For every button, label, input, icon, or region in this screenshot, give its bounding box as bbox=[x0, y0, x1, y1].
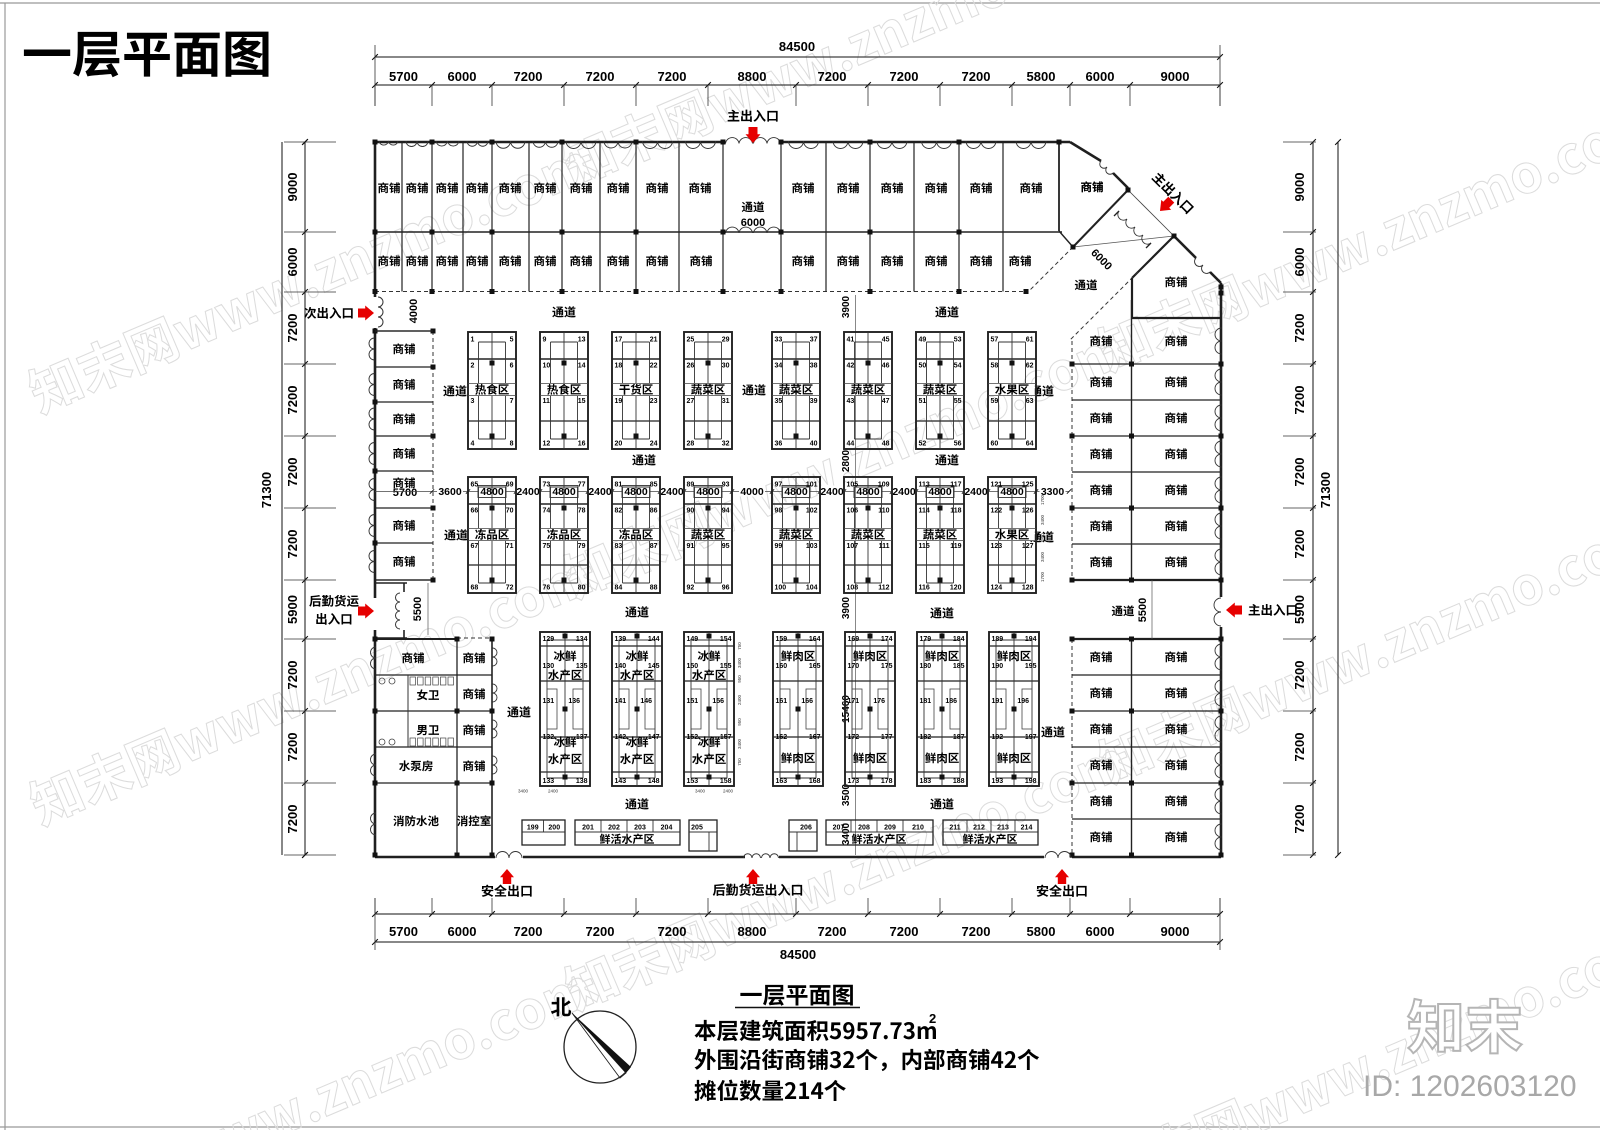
svg-text:7200: 7200 bbox=[1292, 805, 1307, 834]
svg-text:171: 171 bbox=[848, 698, 860, 705]
svg-text:59: 59 bbox=[991, 398, 999, 405]
svg-text:191: 191 bbox=[992, 698, 1004, 705]
svg-text:77: 77 bbox=[578, 482, 586, 489]
svg-text:163: 163 bbox=[776, 778, 788, 785]
svg-text:7200: 7200 bbox=[285, 805, 300, 834]
svg-text:95: 95 bbox=[722, 543, 730, 550]
svg-text:202: 202 bbox=[608, 825, 620, 832]
svg-text:145: 145 bbox=[648, 663, 660, 670]
svg-text:57: 57 bbox=[991, 337, 999, 344]
svg-text:146: 146 bbox=[640, 698, 652, 705]
svg-text:175: 175 bbox=[881, 663, 893, 670]
svg-text:36: 36 bbox=[775, 441, 783, 448]
svg-text:5700: 5700 bbox=[389, 924, 418, 939]
svg-text:73: 73 bbox=[543, 482, 551, 489]
svg-text:6000: 6000 bbox=[1086, 69, 1115, 84]
svg-text:8800: 8800 bbox=[738, 924, 767, 939]
svg-text:34: 34 bbox=[775, 363, 783, 370]
svg-text:7200: 7200 bbox=[818, 69, 847, 84]
svg-text:173: 173 bbox=[848, 778, 860, 785]
svg-text:7200: 7200 bbox=[818, 924, 847, 939]
svg-text:8800: 8800 bbox=[738, 69, 767, 84]
svg-text:2: 2 bbox=[929, 1011, 936, 1026]
svg-text:164: 164 bbox=[809, 636, 821, 643]
svg-text:5700: 5700 bbox=[389, 69, 418, 84]
svg-text:19: 19 bbox=[615, 398, 623, 405]
svg-text:53: 53 bbox=[954, 337, 962, 344]
svg-text:184: 184 bbox=[953, 636, 965, 643]
svg-text:82: 82 bbox=[615, 508, 623, 515]
svg-text:2400: 2400 bbox=[892, 486, 916, 498]
svg-text:103: 103 bbox=[806, 543, 818, 550]
svg-text:120: 120 bbox=[950, 585, 962, 592]
svg-text:23: 23 bbox=[650, 398, 658, 405]
svg-text:28: 28 bbox=[687, 441, 695, 448]
svg-text:68: 68 bbox=[471, 585, 479, 592]
svg-text:165: 165 bbox=[809, 663, 821, 670]
svg-text:5800: 5800 bbox=[1027, 924, 1056, 939]
svg-text:130: 130 bbox=[543, 663, 555, 670]
svg-text:97: 97 bbox=[775, 482, 783, 489]
svg-text:7200: 7200 bbox=[1292, 386, 1307, 415]
svg-text:5: 5 bbox=[510, 337, 514, 344]
svg-text:46: 46 bbox=[882, 363, 890, 370]
svg-text:198: 198 bbox=[1025, 778, 1037, 785]
svg-text:64: 64 bbox=[1026, 441, 1034, 448]
svg-text:9000: 9000 bbox=[285, 173, 300, 202]
svg-text:194: 194 bbox=[1025, 636, 1037, 643]
svg-text:176: 176 bbox=[873, 698, 885, 705]
svg-text:155: 155 bbox=[720, 663, 732, 670]
svg-text:147: 147 bbox=[648, 734, 660, 741]
svg-text:900: 900 bbox=[1040, 533, 1045, 541]
svg-text:25: 25 bbox=[687, 337, 695, 344]
svg-text:139: 139 bbox=[615, 636, 627, 643]
svg-text:132: 132 bbox=[543, 734, 555, 741]
svg-text:186: 186 bbox=[945, 698, 957, 705]
svg-text:62: 62 bbox=[1026, 363, 1034, 370]
svg-text:5900: 5900 bbox=[285, 595, 300, 624]
svg-text:135: 135 bbox=[576, 663, 588, 670]
svg-text:66: 66 bbox=[471, 508, 479, 515]
svg-text:105: 105 bbox=[847, 482, 859, 489]
svg-text:108: 108 bbox=[847, 585, 859, 592]
svg-text:158: 158 bbox=[720, 778, 732, 785]
svg-text:118: 118 bbox=[950, 508, 961, 515]
svg-text:58: 58 bbox=[991, 363, 999, 370]
svg-text:161: 161 bbox=[776, 698, 788, 705]
svg-text:7200: 7200 bbox=[962, 69, 991, 84]
svg-text:174: 174 bbox=[881, 636, 893, 643]
svg-text:4000: 4000 bbox=[740, 486, 764, 498]
svg-text:49: 49 bbox=[919, 337, 927, 344]
svg-text:21: 21 bbox=[650, 337, 658, 344]
svg-text:42: 42 bbox=[847, 363, 855, 370]
svg-text:37: 37 bbox=[810, 337, 818, 344]
svg-text:149: 149 bbox=[687, 636, 699, 643]
svg-text:96: 96 bbox=[722, 585, 730, 592]
svg-text:150: 150 bbox=[687, 663, 699, 670]
svg-text:11: 11 bbox=[543, 398, 551, 405]
svg-text:750: 750 bbox=[737, 642, 742, 650]
svg-text:26: 26 bbox=[687, 363, 695, 370]
svg-text:200: 200 bbox=[548, 825, 560, 832]
svg-text:76: 76 bbox=[543, 585, 551, 592]
svg-text:113: 113 bbox=[919, 482, 930, 489]
svg-text:32: 32 bbox=[722, 441, 730, 448]
svg-text:14: 14 bbox=[578, 363, 586, 370]
svg-text:116: 116 bbox=[919, 585, 930, 592]
svg-text:71300: 71300 bbox=[259, 472, 274, 508]
svg-text:6000: 6000 bbox=[285, 248, 300, 277]
svg-text:193: 193 bbox=[992, 778, 1004, 785]
svg-text:2400: 2400 bbox=[737, 694, 742, 705]
svg-text:7200: 7200 bbox=[1292, 661, 1307, 690]
svg-text:7200: 7200 bbox=[890, 924, 919, 939]
svg-text:1700: 1700 bbox=[1040, 571, 1045, 582]
svg-text:98: 98 bbox=[775, 508, 783, 515]
svg-text:48: 48 bbox=[882, 441, 890, 448]
svg-text:157: 157 bbox=[720, 734, 732, 741]
svg-text:89: 89 bbox=[687, 482, 695, 489]
svg-text:7200: 7200 bbox=[586, 924, 615, 939]
svg-text:6: 6 bbox=[510, 363, 514, 370]
svg-text:136: 136 bbox=[568, 698, 580, 705]
svg-text:9000: 9000 bbox=[1161, 69, 1190, 84]
svg-text:65: 65 bbox=[471, 482, 479, 489]
svg-text:85: 85 bbox=[650, 482, 658, 489]
svg-text:51: 51 bbox=[919, 398, 927, 405]
svg-text:3400: 3400 bbox=[695, 789, 706, 794]
svg-text:137: 137 bbox=[576, 734, 588, 741]
svg-text:7200: 7200 bbox=[658, 69, 687, 84]
svg-text:206: 206 bbox=[800, 825, 812, 832]
svg-text:2400: 2400 bbox=[820, 486, 844, 498]
svg-text:7200: 7200 bbox=[285, 386, 300, 415]
svg-text:9000: 9000 bbox=[1161, 924, 1190, 939]
svg-text:17: 17 bbox=[615, 337, 623, 344]
svg-text:125: 125 bbox=[1022, 482, 1034, 489]
svg-text:7200: 7200 bbox=[285, 733, 300, 762]
svg-text:7200: 7200 bbox=[285, 661, 300, 690]
svg-text:196: 196 bbox=[1017, 698, 1029, 705]
svg-text:214: 214 bbox=[1021, 825, 1033, 832]
svg-text:52: 52 bbox=[919, 441, 927, 448]
svg-text:3400: 3400 bbox=[737, 657, 742, 668]
svg-text:7: 7 bbox=[510, 398, 514, 405]
svg-text:2800: 2800 bbox=[841, 449, 852, 472]
svg-text:60: 60 bbox=[991, 441, 999, 448]
svg-text:197: 197 bbox=[1025, 734, 1037, 741]
svg-text:2400: 2400 bbox=[964, 486, 988, 498]
svg-text:166: 166 bbox=[801, 698, 813, 705]
svg-text:6000: 6000 bbox=[448, 69, 477, 84]
svg-text:195: 195 bbox=[1025, 663, 1037, 670]
svg-text:83: 83 bbox=[615, 543, 623, 550]
svg-text:207: 207 bbox=[833, 825, 845, 832]
svg-text:181: 181 bbox=[920, 698, 932, 705]
svg-text:213: 213 bbox=[997, 825, 1009, 832]
svg-text:13: 13 bbox=[578, 337, 586, 344]
svg-text:92: 92 bbox=[687, 585, 695, 592]
svg-text:3900: 3900 bbox=[841, 295, 852, 318]
svg-text:138: 138 bbox=[576, 778, 588, 785]
svg-text:124: 124 bbox=[991, 585, 1003, 592]
svg-text:47: 47 bbox=[882, 398, 890, 405]
svg-text:152: 152 bbox=[687, 734, 699, 741]
svg-text:ID: 1202603120: ID: 1202603120 bbox=[1363, 1070, 1577, 1103]
svg-text:169: 169 bbox=[848, 636, 860, 643]
svg-text:7200: 7200 bbox=[962, 924, 991, 939]
svg-text:6000: 6000 bbox=[1086, 924, 1115, 939]
svg-text:16: 16 bbox=[578, 441, 586, 448]
svg-text:102: 102 bbox=[806, 508, 818, 515]
svg-text:69: 69 bbox=[506, 482, 514, 489]
svg-text:84: 84 bbox=[615, 585, 623, 592]
svg-text:7200: 7200 bbox=[514, 69, 543, 84]
svg-text:6000: 6000 bbox=[448, 924, 477, 939]
svg-text:131: 131 bbox=[543, 698, 555, 705]
svg-text:210: 210 bbox=[912, 825, 924, 832]
svg-text:6000: 6000 bbox=[1292, 248, 1307, 277]
svg-text:211: 211 bbox=[949, 825, 960, 832]
svg-text:950: 950 bbox=[737, 718, 742, 726]
svg-text:4: 4 bbox=[471, 441, 475, 448]
svg-text:7200: 7200 bbox=[285, 530, 300, 559]
svg-text:2400: 2400 bbox=[548, 789, 559, 794]
svg-text:30: 30 bbox=[722, 363, 730, 370]
svg-text:7200: 7200 bbox=[586, 69, 615, 84]
svg-text:189: 189 bbox=[992, 636, 1004, 643]
svg-text:90: 90 bbox=[687, 508, 695, 515]
svg-text:88: 88 bbox=[650, 585, 658, 592]
svg-text:5700: 5700 bbox=[393, 487, 417, 499]
svg-text:94: 94 bbox=[722, 508, 730, 515]
svg-text:41: 41 bbox=[847, 337, 855, 344]
svg-text:117: 117 bbox=[950, 482, 961, 489]
svg-text:128: 128 bbox=[1022, 585, 1034, 592]
svg-text:119: 119 bbox=[950, 543, 961, 550]
svg-text:35: 35 bbox=[775, 398, 783, 405]
svg-text:4000: 4000 bbox=[408, 299, 420, 323]
svg-text:31: 31 bbox=[722, 398, 730, 405]
svg-text:154: 154 bbox=[720, 636, 732, 643]
svg-text:5500: 5500 bbox=[412, 597, 424, 621]
svg-text:156: 156 bbox=[712, 698, 724, 705]
svg-text:81: 81 bbox=[615, 482, 623, 489]
svg-text:134: 134 bbox=[576, 636, 588, 643]
svg-text:750: 750 bbox=[737, 758, 742, 766]
svg-text:7200: 7200 bbox=[514, 924, 543, 939]
svg-text:109: 109 bbox=[878, 482, 890, 489]
svg-text:7200: 7200 bbox=[285, 458, 300, 487]
svg-text:106: 106 bbox=[847, 508, 859, 515]
svg-text:126: 126 bbox=[1022, 508, 1034, 515]
svg-text:50: 50 bbox=[919, 363, 927, 370]
svg-text:5800: 5800 bbox=[1027, 69, 1056, 84]
svg-text:67: 67 bbox=[471, 543, 479, 550]
svg-text:140: 140 bbox=[615, 663, 627, 670]
svg-text:72: 72 bbox=[506, 585, 514, 592]
svg-text:40: 40 bbox=[810, 441, 818, 448]
svg-text:112: 112 bbox=[878, 585, 889, 592]
svg-text:187: 187 bbox=[953, 734, 965, 741]
svg-text:45: 45 bbox=[882, 337, 890, 344]
svg-text:91: 91 bbox=[687, 543, 695, 550]
svg-text:151: 151 bbox=[687, 698, 699, 705]
svg-text:950: 950 bbox=[737, 675, 742, 683]
svg-text:114: 114 bbox=[919, 508, 930, 515]
svg-text:160: 160 bbox=[776, 663, 788, 670]
svg-text:205: 205 bbox=[691, 825, 703, 832]
svg-text:24: 24 bbox=[650, 441, 658, 448]
svg-text:3400: 3400 bbox=[737, 738, 742, 749]
svg-text:7200: 7200 bbox=[890, 69, 919, 84]
svg-text:9: 9 bbox=[543, 337, 547, 344]
svg-text:29: 29 bbox=[722, 337, 730, 344]
svg-text:141: 141 bbox=[615, 698, 627, 705]
svg-text:7200: 7200 bbox=[285, 314, 300, 343]
svg-text:170: 170 bbox=[848, 663, 860, 670]
svg-text:2400: 2400 bbox=[588, 486, 612, 498]
svg-text:7200: 7200 bbox=[1292, 314, 1307, 343]
svg-text:121: 121 bbox=[991, 482, 1003, 489]
svg-text:168: 168 bbox=[809, 778, 821, 785]
svg-text:75: 75 bbox=[543, 543, 551, 550]
svg-text:185: 185 bbox=[953, 663, 965, 670]
svg-text:1: 1 bbox=[471, 337, 475, 344]
svg-text:86: 86 bbox=[650, 508, 658, 515]
svg-text:190: 190 bbox=[992, 663, 1004, 670]
svg-text:27: 27 bbox=[687, 398, 695, 405]
svg-text:87: 87 bbox=[650, 543, 658, 550]
svg-text:110: 110 bbox=[878, 508, 889, 515]
svg-text:178: 178 bbox=[881, 778, 893, 785]
svg-text:84500: 84500 bbox=[779, 39, 815, 54]
svg-text:162: 162 bbox=[776, 734, 788, 741]
svg-text:5500: 5500 bbox=[1137, 598, 1149, 622]
svg-text:2400: 2400 bbox=[723, 789, 734, 794]
svg-text:179: 179 bbox=[920, 636, 932, 643]
svg-text:18: 18 bbox=[615, 363, 623, 370]
svg-text:209: 209 bbox=[884, 825, 896, 832]
svg-text:212: 212 bbox=[973, 825, 985, 832]
svg-text:61: 61 bbox=[1026, 337, 1034, 344]
svg-text:182: 182 bbox=[920, 734, 932, 741]
svg-text:78: 78 bbox=[578, 508, 586, 515]
svg-text:127: 127 bbox=[1022, 543, 1034, 550]
svg-text:56: 56 bbox=[954, 441, 962, 448]
svg-text:3400: 3400 bbox=[518, 789, 529, 794]
svg-text:100: 100 bbox=[775, 585, 787, 592]
svg-text:203: 203 bbox=[634, 825, 646, 832]
svg-text:9000: 9000 bbox=[1292, 173, 1307, 202]
svg-text:107: 107 bbox=[847, 543, 859, 550]
svg-text:142: 142 bbox=[615, 734, 627, 741]
svg-text:7200: 7200 bbox=[1292, 530, 1307, 559]
svg-text:43: 43 bbox=[847, 398, 855, 405]
svg-text:101: 101 bbox=[806, 482, 818, 489]
svg-text:74: 74 bbox=[543, 508, 551, 515]
svg-text:63: 63 bbox=[1026, 398, 1034, 405]
svg-text:177: 177 bbox=[881, 734, 893, 741]
svg-text:129: 129 bbox=[543, 636, 555, 643]
svg-text:55: 55 bbox=[954, 398, 962, 405]
svg-text:3400: 3400 bbox=[1040, 514, 1045, 525]
svg-text:111: 111 bbox=[879, 543, 890, 550]
svg-text:22: 22 bbox=[650, 363, 658, 370]
svg-text:7200: 7200 bbox=[1292, 458, 1307, 487]
svg-text:79: 79 bbox=[578, 543, 586, 550]
svg-text:3600: 3600 bbox=[438, 486, 462, 498]
svg-text:199: 199 bbox=[527, 825, 539, 832]
svg-text:123: 123 bbox=[991, 543, 1003, 550]
svg-text:20: 20 bbox=[615, 441, 623, 448]
svg-text:2400: 2400 bbox=[516, 486, 540, 498]
svg-text:115: 115 bbox=[919, 543, 930, 550]
svg-text:6000: 6000 bbox=[741, 217, 765, 229]
svg-text:143: 143 bbox=[615, 778, 627, 785]
svg-text:70: 70 bbox=[506, 508, 514, 515]
svg-text:148: 148 bbox=[648, 778, 660, 785]
svg-text:208: 208 bbox=[858, 825, 870, 832]
svg-text:204: 204 bbox=[661, 825, 673, 832]
svg-text:133: 133 bbox=[543, 778, 555, 785]
svg-text:44: 44 bbox=[847, 441, 855, 448]
svg-text:93: 93 bbox=[722, 482, 730, 489]
svg-text:201: 201 bbox=[582, 825, 594, 832]
svg-text:3900: 3900 bbox=[841, 596, 852, 619]
svg-text:12: 12 bbox=[543, 441, 551, 448]
svg-text:10: 10 bbox=[543, 363, 551, 370]
svg-text:159: 159 bbox=[776, 636, 788, 643]
svg-text:33: 33 bbox=[775, 337, 783, 344]
svg-text:144: 144 bbox=[648, 636, 660, 643]
svg-text:122: 122 bbox=[991, 508, 1003, 515]
svg-text:1700: 1700 bbox=[1040, 494, 1045, 505]
svg-text:7200: 7200 bbox=[1292, 733, 1307, 762]
svg-text:180: 180 bbox=[920, 663, 932, 670]
svg-text:183: 183 bbox=[920, 778, 932, 785]
svg-text:7200: 7200 bbox=[658, 924, 687, 939]
svg-text:15: 15 bbox=[578, 398, 586, 405]
svg-text:192: 192 bbox=[992, 734, 1004, 741]
svg-text:2: 2 bbox=[471, 363, 475, 370]
svg-text:99: 99 bbox=[775, 543, 783, 550]
svg-text:80: 80 bbox=[578, 585, 586, 592]
svg-text:8: 8 bbox=[510, 441, 514, 448]
svg-text:188: 188 bbox=[953, 778, 965, 785]
svg-text:2400: 2400 bbox=[660, 486, 684, 498]
svg-text:167: 167 bbox=[809, 734, 821, 741]
svg-text:38: 38 bbox=[810, 363, 818, 370]
svg-text:71300: 71300 bbox=[1318, 472, 1333, 508]
svg-text:153: 153 bbox=[687, 778, 699, 785]
svg-text:39: 39 bbox=[810, 398, 818, 405]
svg-text:3: 3 bbox=[471, 398, 475, 405]
svg-text:5900: 5900 bbox=[1292, 595, 1307, 624]
svg-text:54: 54 bbox=[954, 363, 962, 370]
svg-text:172: 172 bbox=[848, 734, 860, 741]
svg-text:3400: 3400 bbox=[1040, 551, 1045, 562]
svg-text:104: 104 bbox=[806, 585, 818, 592]
svg-text:71: 71 bbox=[506, 543, 514, 550]
svg-text:84500: 84500 bbox=[780, 947, 816, 962]
